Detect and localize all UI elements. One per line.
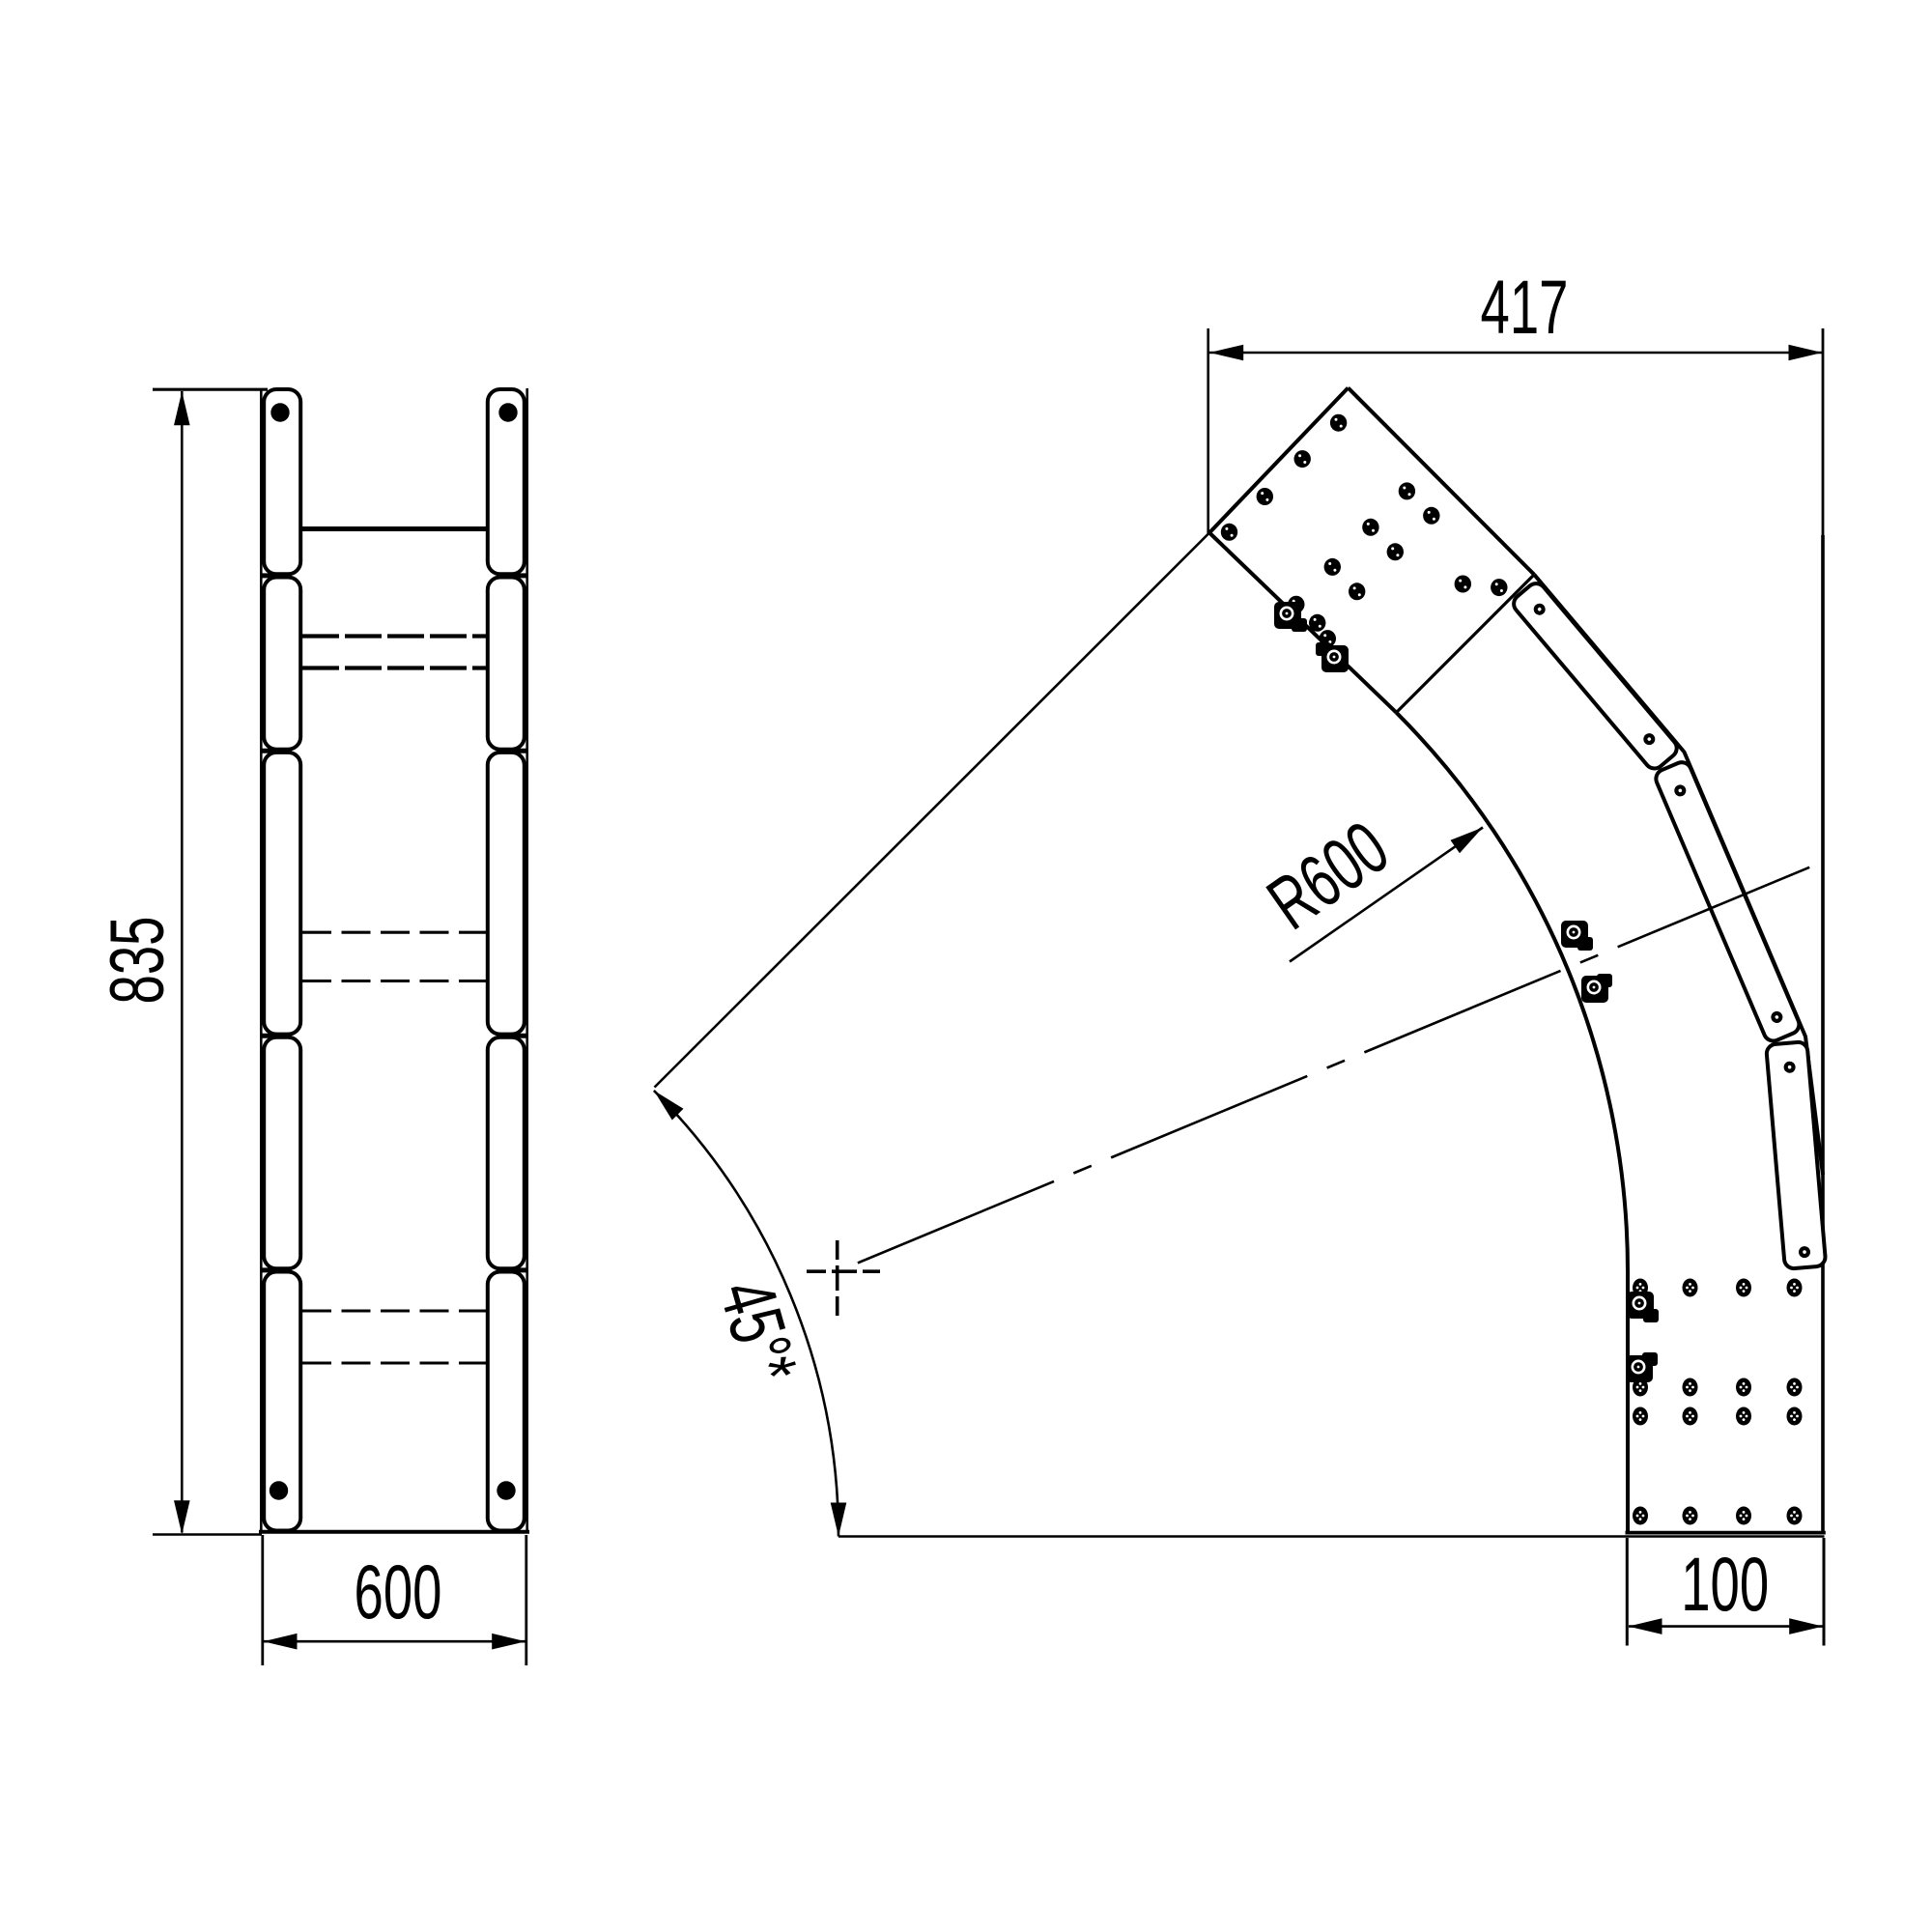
- svg-text:45°*: 45°*: [703, 1271, 814, 1393]
- svg-text:R600: R600: [1253, 806, 1403, 946]
- svg-text:600: 600: [355, 1550, 442, 1634]
- svg-text:835: 835: [96, 917, 180, 1005]
- svg-text:417: 417: [1481, 266, 1569, 350]
- svg-text:100: 100: [1681, 1543, 1769, 1627]
